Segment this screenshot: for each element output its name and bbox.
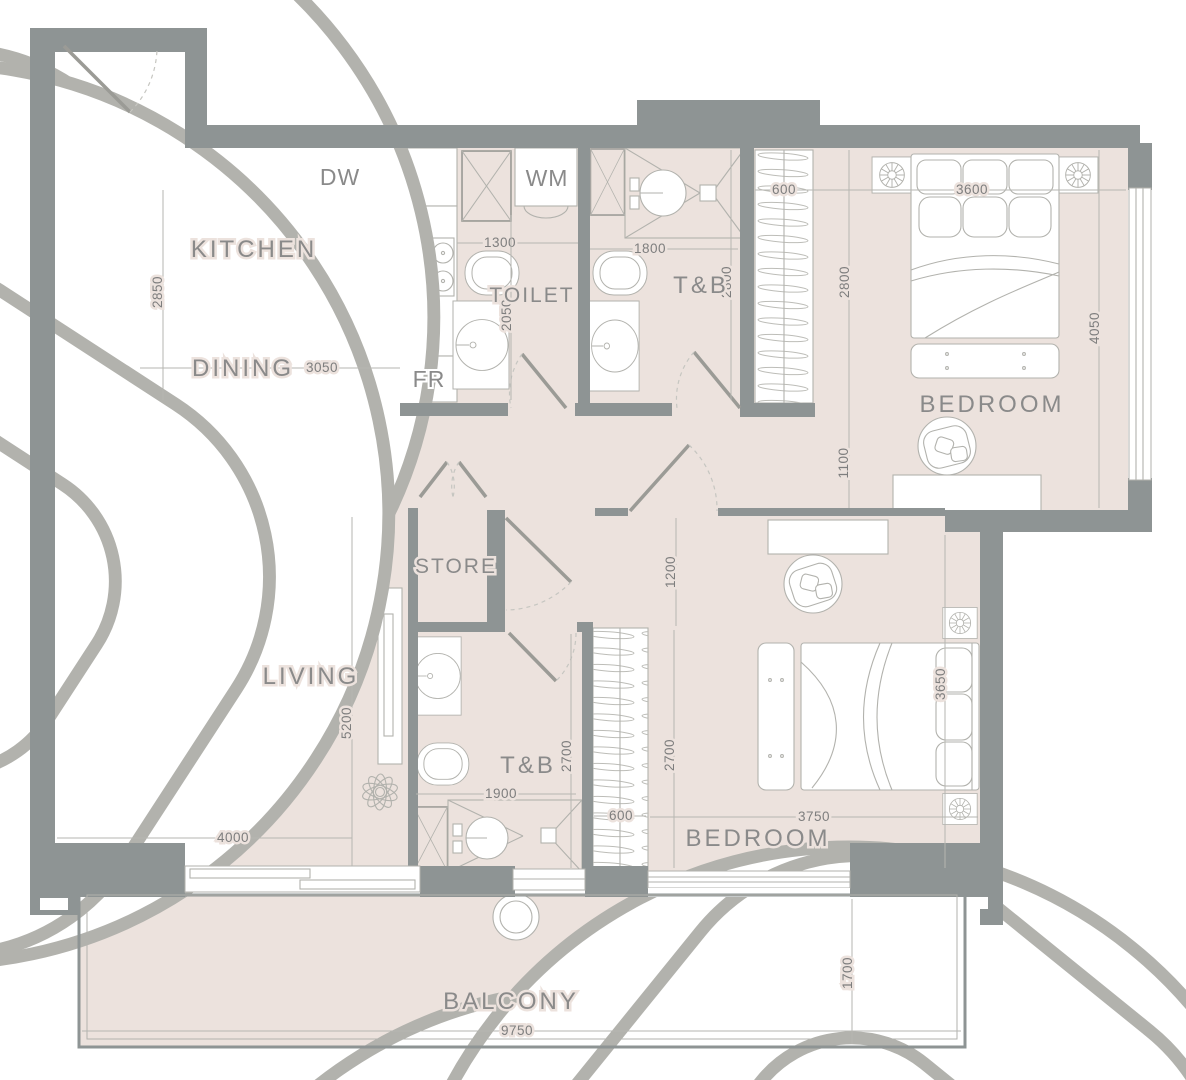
wall-toilet-south	[400, 403, 508, 416]
wall-exterior-bottom-mid1	[420, 866, 515, 897]
wall-exterior-left	[30, 28, 55, 883]
room-label-kitchen: KITCHEN	[191, 236, 317, 263]
wall-exterior-top-left	[30, 28, 207, 52]
door-tb-bottom-balcony	[513, 869, 585, 890]
toilet-icon	[417, 743, 469, 785]
wall-hall-partition-west	[595, 508, 628, 516]
room-label-living: LIVING	[263, 663, 360, 690]
toilet-icon	[593, 251, 647, 295]
appliance-label-dishwasher: DW	[320, 164, 360, 190]
bed-bench	[758, 643, 794, 790]
bed-bench	[911, 344, 1059, 378]
desk-chair	[918, 417, 976, 475]
wall-exterior-bottom-mid2	[585, 866, 648, 897]
appliance-label-fridge: FR	[413, 366, 446, 392]
wall-notch	[958, 897, 988, 909]
duct-shaft-icon	[414, 807, 448, 871]
appliance-label-washing-machine: WM	[526, 165, 569, 191]
wall-notch	[40, 898, 68, 910]
desk	[893, 475, 1041, 511]
window-bedroom-bottom-south	[648, 871, 850, 897]
dim-wardrobe-bottom: 600	[609, 808, 633, 823]
window-bedroom-top-east	[1129, 188, 1151, 480]
duct-shaft-icon	[591, 149, 625, 215]
wall-exterior-top	[185, 125, 1140, 148]
dim-living-depth: 5200	[339, 707, 354, 739]
wall-exterior-top-step	[637, 100, 820, 128]
wall-exterior-bottom-east	[850, 843, 1003, 897]
balcony-table	[493, 894, 539, 940]
desk	[768, 520, 888, 554]
wall-hall-partition-east	[718, 508, 945, 516]
dim-tb-bottom-width: 1900	[485, 786, 517, 801]
dim-tb-bottom-depth: 2700	[559, 740, 574, 772]
wall-tb-south	[575, 403, 672, 416]
dim-balcony-depth: 1700	[840, 957, 855, 989]
ac-vent-icon	[943, 607, 977, 638]
dim-bedroom-top-depth: 2800	[837, 266, 852, 298]
desk-chair	[784, 555, 842, 613]
room-label-toilet: TOILET	[489, 284, 574, 307]
sliding-door-living-balcony	[185, 866, 420, 892]
wall-tb-bedroom	[740, 143, 754, 417]
dim-bedroom-bottom-depth: 2700	[662, 739, 677, 771]
dim-bedroom-top-extension: 1100	[836, 447, 851, 478]
dim-bedroom-bottom-entry: 1200	[663, 556, 678, 588]
dim-wardrobe-top: 600	[772, 182, 796, 197]
room-label-tb-top: T&B	[673, 272, 729, 299]
wall-wardrobe-bottom	[740, 403, 815, 417]
ac-vent-icon	[1058, 157, 1098, 193]
wardrobe-bottom	[593, 628, 648, 873]
room-label-tb-bottom: T&B	[500, 752, 556, 779]
ac-vent-icon	[943, 793, 977, 824]
dim-bedroom-top-full-depth: 4050	[1087, 312, 1102, 344]
sink-icon	[413, 637, 461, 715]
dim-living-width: 4000	[217, 830, 249, 845]
wall-store-south	[408, 622, 505, 632]
dim-tb-top-width: 1800	[634, 241, 666, 256]
dim-bedroom-top-width: 3600	[956, 182, 988, 197]
wall-exterior-right-upper	[1128, 143, 1152, 190]
sink-icon	[589, 301, 639, 391]
floor-plan: 2850 3050 1300 2050 1800 2800 600 3600 2…	[0, 0, 1186, 1080]
wall-toilet-tb	[578, 143, 590, 407]
dim-kitchen-dining-width: 3050	[306, 360, 338, 375]
dim-balcony-width: 9750	[501, 1023, 533, 1038]
room-label-bedroom-top: BEDROOM	[919, 391, 1064, 418]
dim-bedroom-bottom-right-depth: 3650	[933, 668, 948, 700]
duct-shaft-icon	[462, 151, 511, 221]
room-label-balcony: BALCONY	[443, 988, 579, 1015]
dim-kitchen-depth: 2850	[150, 276, 165, 308]
floor-plan-drawing: 2850 3050 1300 2050 1800 2800 600 3600 2…	[0, 0, 1186, 1080]
bed-double	[801, 643, 979, 790]
room-label-store: STORE	[415, 555, 497, 578]
ac-vent-icon	[872, 157, 912, 193]
wall-wardrobe2-left	[582, 628, 593, 873]
dim-bedroom-bottom-width: 3750	[798, 809, 830, 824]
room-label-bedroom-bottom: BEDROOM	[685, 825, 830, 852]
room-label-dining: DINING	[192, 355, 294, 382]
wall-exterior-step-horizontal	[945, 510, 1152, 532]
